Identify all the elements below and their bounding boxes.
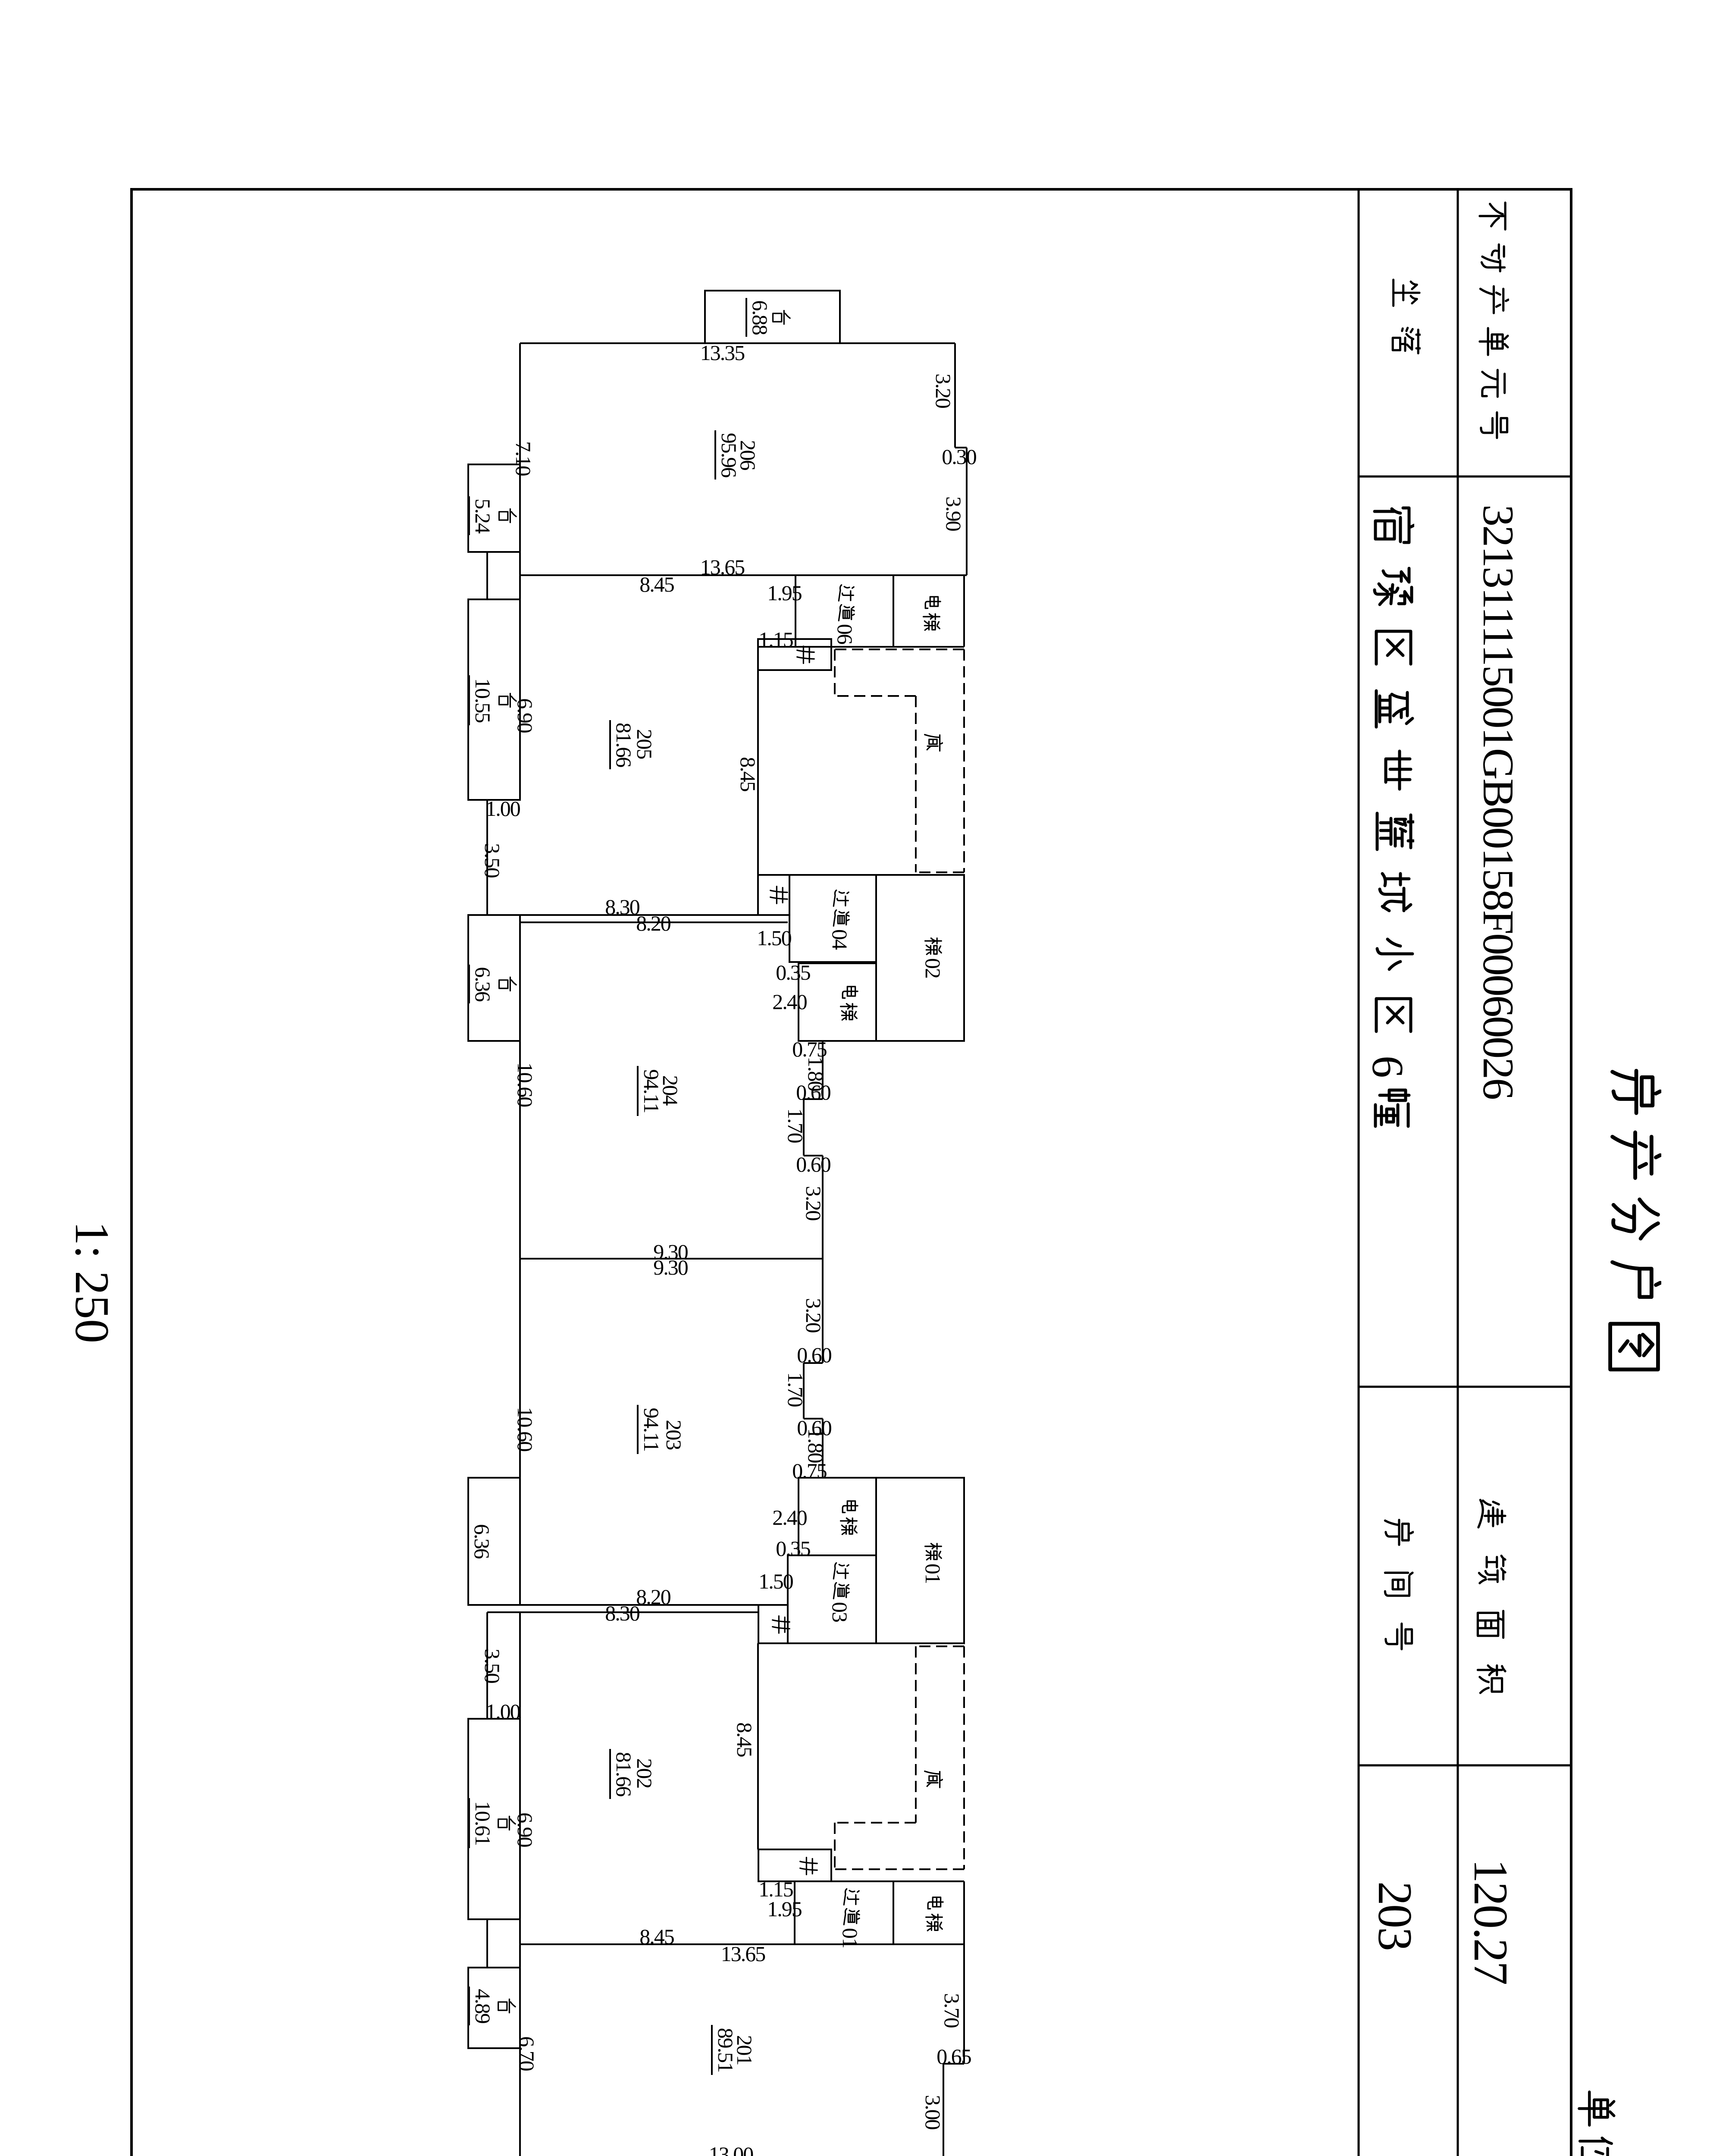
svg-text:8.45: 8.45 bbox=[733, 1722, 757, 1757]
svg-text:9.30: 9.30 bbox=[653, 1255, 688, 1279]
svg-text:01: 01 bbox=[838, 1928, 862, 1948]
svg-text:1.50: 1.50 bbox=[757, 926, 792, 950]
svg-text:6.90: 6.90 bbox=[513, 1812, 537, 1847]
svg-text:1: 250: 1: 250 bbox=[65, 1221, 119, 1343]
svg-text:7.10: 7.10 bbox=[511, 441, 536, 476]
svg-text:10.60: 10.60 bbox=[513, 1407, 537, 1452]
svg-text:0.60: 0.60 bbox=[796, 1080, 831, 1104]
svg-text:81.66: 81.66 bbox=[612, 1752, 636, 1797]
svg-text:8.20: 8.20 bbox=[636, 1585, 671, 1609]
svg-text:202: 202 bbox=[633, 1758, 657, 1788]
svg-text:89.51: 89.51 bbox=[714, 2028, 738, 2072]
svg-text:8.45: 8.45 bbox=[639, 572, 674, 596]
svg-text:0.65: 0.65 bbox=[936, 2044, 971, 2068]
svg-text:4.89: 4.89 bbox=[471, 1989, 495, 2023]
svg-text:06: 06 bbox=[833, 624, 857, 644]
svg-text:13.65: 13.65 bbox=[700, 555, 745, 579]
svg-text:3.20: 3.20 bbox=[802, 1298, 826, 1333]
svg-text:1.70: 1.70 bbox=[783, 1372, 808, 1407]
svg-text:203: 203 bbox=[662, 1420, 686, 1450]
svg-text:203: 203 bbox=[1368, 1881, 1422, 1950]
svg-text:95.96: 95.96 bbox=[717, 433, 741, 478]
svg-text:6.36: 6.36 bbox=[471, 967, 495, 1002]
svg-text:02: 02 bbox=[921, 958, 945, 978]
svg-text:6.36: 6.36 bbox=[470, 1524, 494, 1559]
svg-text:8.45: 8.45 bbox=[639, 1924, 674, 1949]
svg-text:3.00: 3.00 bbox=[921, 2095, 945, 2130]
svg-text:0.75: 0.75 bbox=[792, 1459, 827, 1483]
svg-text:13.00: 13.00 bbox=[709, 2142, 754, 2156]
svg-text:0.35: 0.35 bbox=[776, 1536, 811, 1561]
svg-text:13.65: 13.65 bbox=[721, 1942, 766, 1966]
svg-text:13.35: 13.35 bbox=[700, 341, 745, 365]
svg-text:120.27: 120.27 bbox=[1464, 1859, 1517, 1984]
svg-text:1.00: 1.00 bbox=[485, 796, 520, 821]
svg-text:03: 03 bbox=[828, 1602, 852, 1622]
svg-text:6: 6 bbox=[1363, 1056, 1412, 1078]
svg-text:3.20: 3.20 bbox=[802, 1186, 826, 1221]
svg-text:1.70: 1.70 bbox=[783, 1108, 808, 1143]
svg-text:6.70: 6.70 bbox=[515, 2036, 539, 2071]
svg-text:1.00: 1.00 bbox=[485, 1699, 520, 1724]
svg-text:0.35: 0.35 bbox=[776, 960, 811, 984]
svg-text:81.66: 81.66 bbox=[612, 723, 636, 768]
svg-text:1.50: 1.50 bbox=[758, 1569, 793, 1593]
svg-text:1.15: 1.15 bbox=[758, 627, 793, 652]
svg-text:205: 205 bbox=[633, 729, 657, 759]
svg-text:8.45: 8.45 bbox=[736, 757, 760, 792]
svg-text:5.24: 5.24 bbox=[471, 498, 495, 534]
svg-text:8.30: 8.30 bbox=[605, 1601, 640, 1625]
svg-text:321311115001GB00158F00060026: 321311115001GB00158F00060026 bbox=[1474, 505, 1522, 1099]
svg-text:3.70: 3.70 bbox=[940, 1993, 964, 2028]
svg-text:1.95: 1.95 bbox=[767, 1897, 802, 1921]
svg-text:04: 04 bbox=[828, 929, 852, 950]
svg-text:01: 01 bbox=[921, 1564, 945, 1583]
svg-text:0.60: 0.60 bbox=[796, 1152, 831, 1176]
svg-text:2.40: 2.40 bbox=[772, 1505, 807, 1529]
svg-text:3.20: 3.20 bbox=[931, 373, 955, 408]
svg-text:10.61: 10.61 bbox=[471, 1801, 495, 1846]
svg-text:3.90: 3.90 bbox=[942, 496, 966, 531]
svg-text:0.30: 0.30 bbox=[942, 445, 977, 469]
svg-text:10.60: 10.60 bbox=[513, 1062, 537, 1107]
svg-text:3.50: 3.50 bbox=[480, 843, 504, 878]
svg-text:8.20: 8.20 bbox=[636, 911, 671, 935]
svg-text:6.88: 6.88 bbox=[748, 300, 772, 335]
svg-text:94.11: 94.11 bbox=[639, 1069, 664, 1113]
svg-text:1.95: 1.95 bbox=[767, 581, 802, 605]
svg-text:2.40: 2.40 bbox=[772, 990, 807, 1014]
svg-text:1.80: 1.80 bbox=[804, 1428, 828, 1463]
svg-text:94.11: 94.11 bbox=[639, 1408, 664, 1451]
svg-text:10.55: 10.55 bbox=[471, 678, 495, 723]
svg-text:3.50: 3.50 bbox=[480, 1648, 504, 1683]
svg-text:8.30: 8.30 bbox=[605, 895, 640, 919]
svg-text:0.60: 0.60 bbox=[797, 1343, 832, 1367]
svg-text:6.90: 6.90 bbox=[513, 698, 537, 733]
